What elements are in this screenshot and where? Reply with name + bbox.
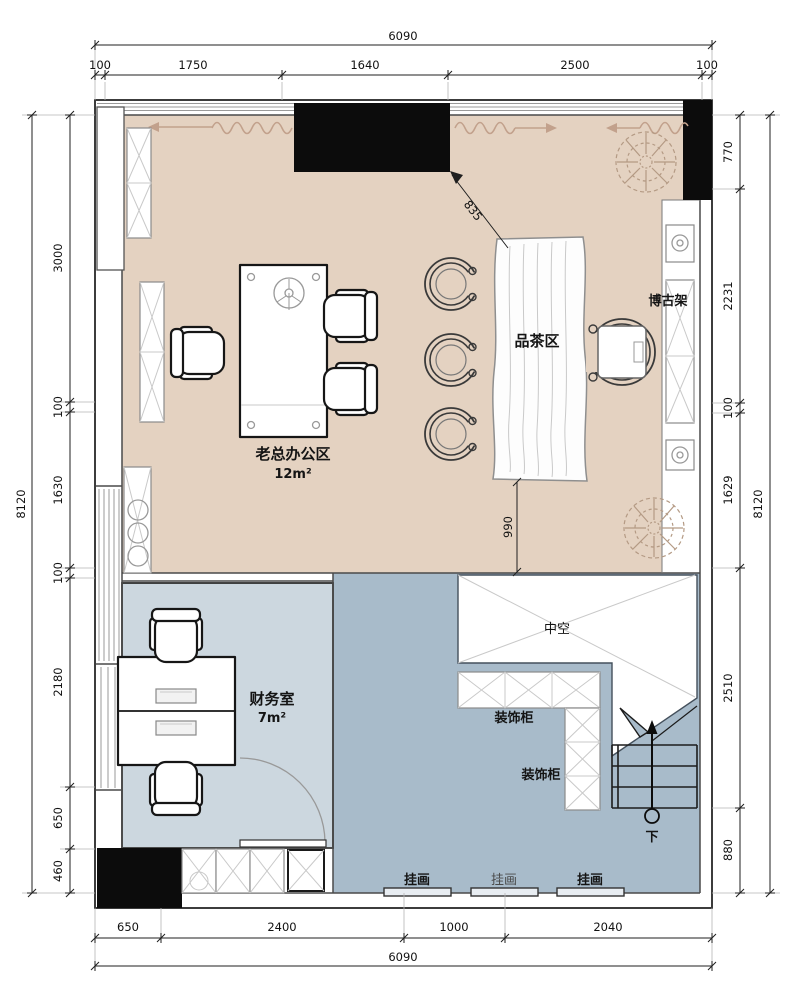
dim-line-bottom-segments: [91, 933, 716, 943]
floor-areas: [122, 115, 700, 893]
dim-bottom-3: 2040: [593, 920, 622, 934]
dim-table-offset: 990: [501, 516, 515, 538]
dim-right-2: 100: [721, 397, 735, 419]
column-top-right: [683, 100, 712, 200]
side-table: [666, 440, 694, 470]
dim-right-0: 770: [721, 141, 735, 163]
dim-left-0: 3000: [51, 243, 65, 272]
boss-desk: [240, 265, 327, 437]
office-chair: [171, 327, 224, 379]
wall-paintings: [384, 888, 624, 896]
dim-bottom-0: 650: [117, 920, 139, 934]
label-stair-down: 下: [645, 830, 658, 845]
dim-line-right-total: [765, 111, 775, 897]
door-leaf: [240, 840, 326, 847]
label-tea-area: 品茶区: [514, 332, 559, 350]
left-window2-icon: [101, 667, 115, 788]
dim-left-4: 2180: [51, 667, 65, 696]
label-deco-cabinet-1: 装饰柜: [493, 710, 533, 726]
dim-left-2: 1630: [51, 475, 65, 504]
label-deco-cabinet-2: 装饰柜: [520, 767, 560, 783]
office-chair: [150, 762, 202, 815]
label-finance-room: 财务室: [249, 690, 294, 708]
label-void: 中空: [544, 622, 570, 637]
dim-top-0: 100: [89, 58, 111, 72]
dim-bottom-total: 6090: [388, 950, 417, 964]
label-finance-room-area: 7m²: [258, 711, 286, 726]
dim-top-total: 6090: [388, 29, 417, 43]
dim-left-6: 460: [51, 860, 65, 882]
office-chair: [150, 609, 202, 662]
label-painting-1: 挂画: [404, 872, 430, 888]
drawer: [156, 689, 196, 703]
tea-table: [493, 237, 587, 481]
dim-right-3: 1629: [721, 475, 735, 504]
dim-right-5: 880: [721, 839, 735, 861]
left-window-icon: [99, 489, 119, 661]
floor-plan-page: 6090 100 1750 1640 2500 100 8120 3000 10…: [0, 0, 800, 1006]
dim-right-total: 8120: [751, 489, 765, 518]
dim-line-left-total: [27, 111, 37, 897]
office-chair: [324, 290, 377, 342]
floor-plan: 6090 100 1750 1640 2500 100 8120 3000 10…: [0, 0, 800, 1006]
dim-top-2: 1640: [350, 58, 379, 72]
dim-line-left-segments: [65, 111, 75, 897]
drawer: [156, 721, 196, 735]
dim-bottom-1: 2400: [267, 920, 296, 934]
column-top-middle: [294, 103, 450, 172]
bottom-cabinets: [182, 849, 324, 893]
dim-left-5: 650: [51, 807, 65, 829]
label-antique-shelf: 博古架: [648, 293, 687, 309]
armchair: [586, 319, 655, 385]
label-boss-office: 老总办公区: [254, 445, 330, 463]
painting: [384, 888, 451, 896]
label-boss-office-area: 12m²: [274, 467, 311, 482]
painting: [471, 888, 538, 896]
office-chair: [324, 363, 377, 415]
dim-left-1: 100: [51, 396, 65, 418]
left-wall-column: [97, 107, 124, 270]
painting: [557, 888, 624, 896]
column-bottom-left: [97, 848, 182, 908]
side-table: [666, 225, 694, 262]
dim-top-1: 1750: [178, 58, 207, 72]
antique-shelf-cabinets: [666, 225, 694, 470]
label-painting-3: 挂画: [577, 872, 603, 888]
dim-left-total: 8120: [14, 489, 28, 518]
dim-left-3: 100: [51, 562, 65, 584]
dim-top-4: 100: [696, 58, 718, 72]
dim-line-right-segments: [735, 111, 745, 897]
dim-right-1: 2231: [721, 281, 735, 310]
dim-top-3: 2500: [560, 58, 589, 72]
dim-right-4: 2510: [721, 673, 735, 702]
label-painting-2: 挂画: [491, 873, 517, 888]
dim-bottom-2: 1000: [439, 920, 468, 934]
